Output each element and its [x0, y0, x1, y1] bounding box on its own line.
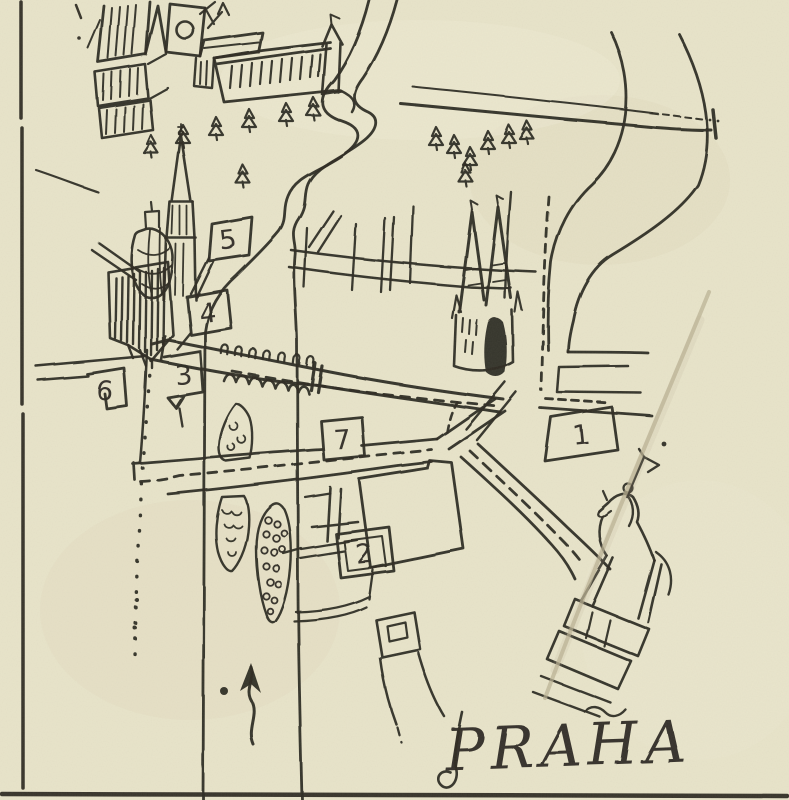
- island-upper: [219, 404, 253, 461]
- marker-flag-7: 7: [321, 417, 365, 460]
- marker-label-6: 6: [95, 375, 114, 407]
- page-border-left: [21, 2, 23, 788]
- prague-map-drawing: 5 4 3 6 7 1 2: [0, 0, 789, 800]
- map-page: 5 4 3 6 7 1 2: [0, 0, 789, 800]
- marker-label-5: 5: [218, 224, 239, 257]
- page-border-bottom: [2, 794, 787, 796]
- marker-flag-5: 5: [191, 217, 252, 297]
- bridge-statues: [220, 344, 315, 367]
- church-portal: [484, 318, 506, 377]
- eastern-street-stubs: [540, 352, 652, 416]
- marker-label-4: 4: [197, 297, 217, 330]
- marker-label-3: 3: [173, 359, 193, 391]
- margin-dot: [77, 36, 81, 40]
- marker-flag-2: 2: [336, 527, 394, 578]
- marker-flag-1: 1: [545, 407, 618, 461]
- ink-blot: [220, 687, 228, 695]
- left-bank-streets: [36, 350, 147, 463]
- domed-church-illustration: [36, 124, 196, 368]
- margin-tick: [76, 5, 81, 18]
- marker-label-2: 2: [354, 538, 374, 571]
- marker-label-1: 1: [571, 419, 591, 452]
- marker-flag-6: 6: [87, 368, 127, 409]
- cathedral-towers: [88, 2, 229, 62]
- map-title-group: PRAHA: [438, 707, 693, 787]
- marker-label-7: 7: [333, 424, 352, 456]
- map-title: PRAHA: [443, 707, 693, 784]
- river-end-tick: [713, 110, 716, 138]
- castle-walls: [95, 54, 168, 138]
